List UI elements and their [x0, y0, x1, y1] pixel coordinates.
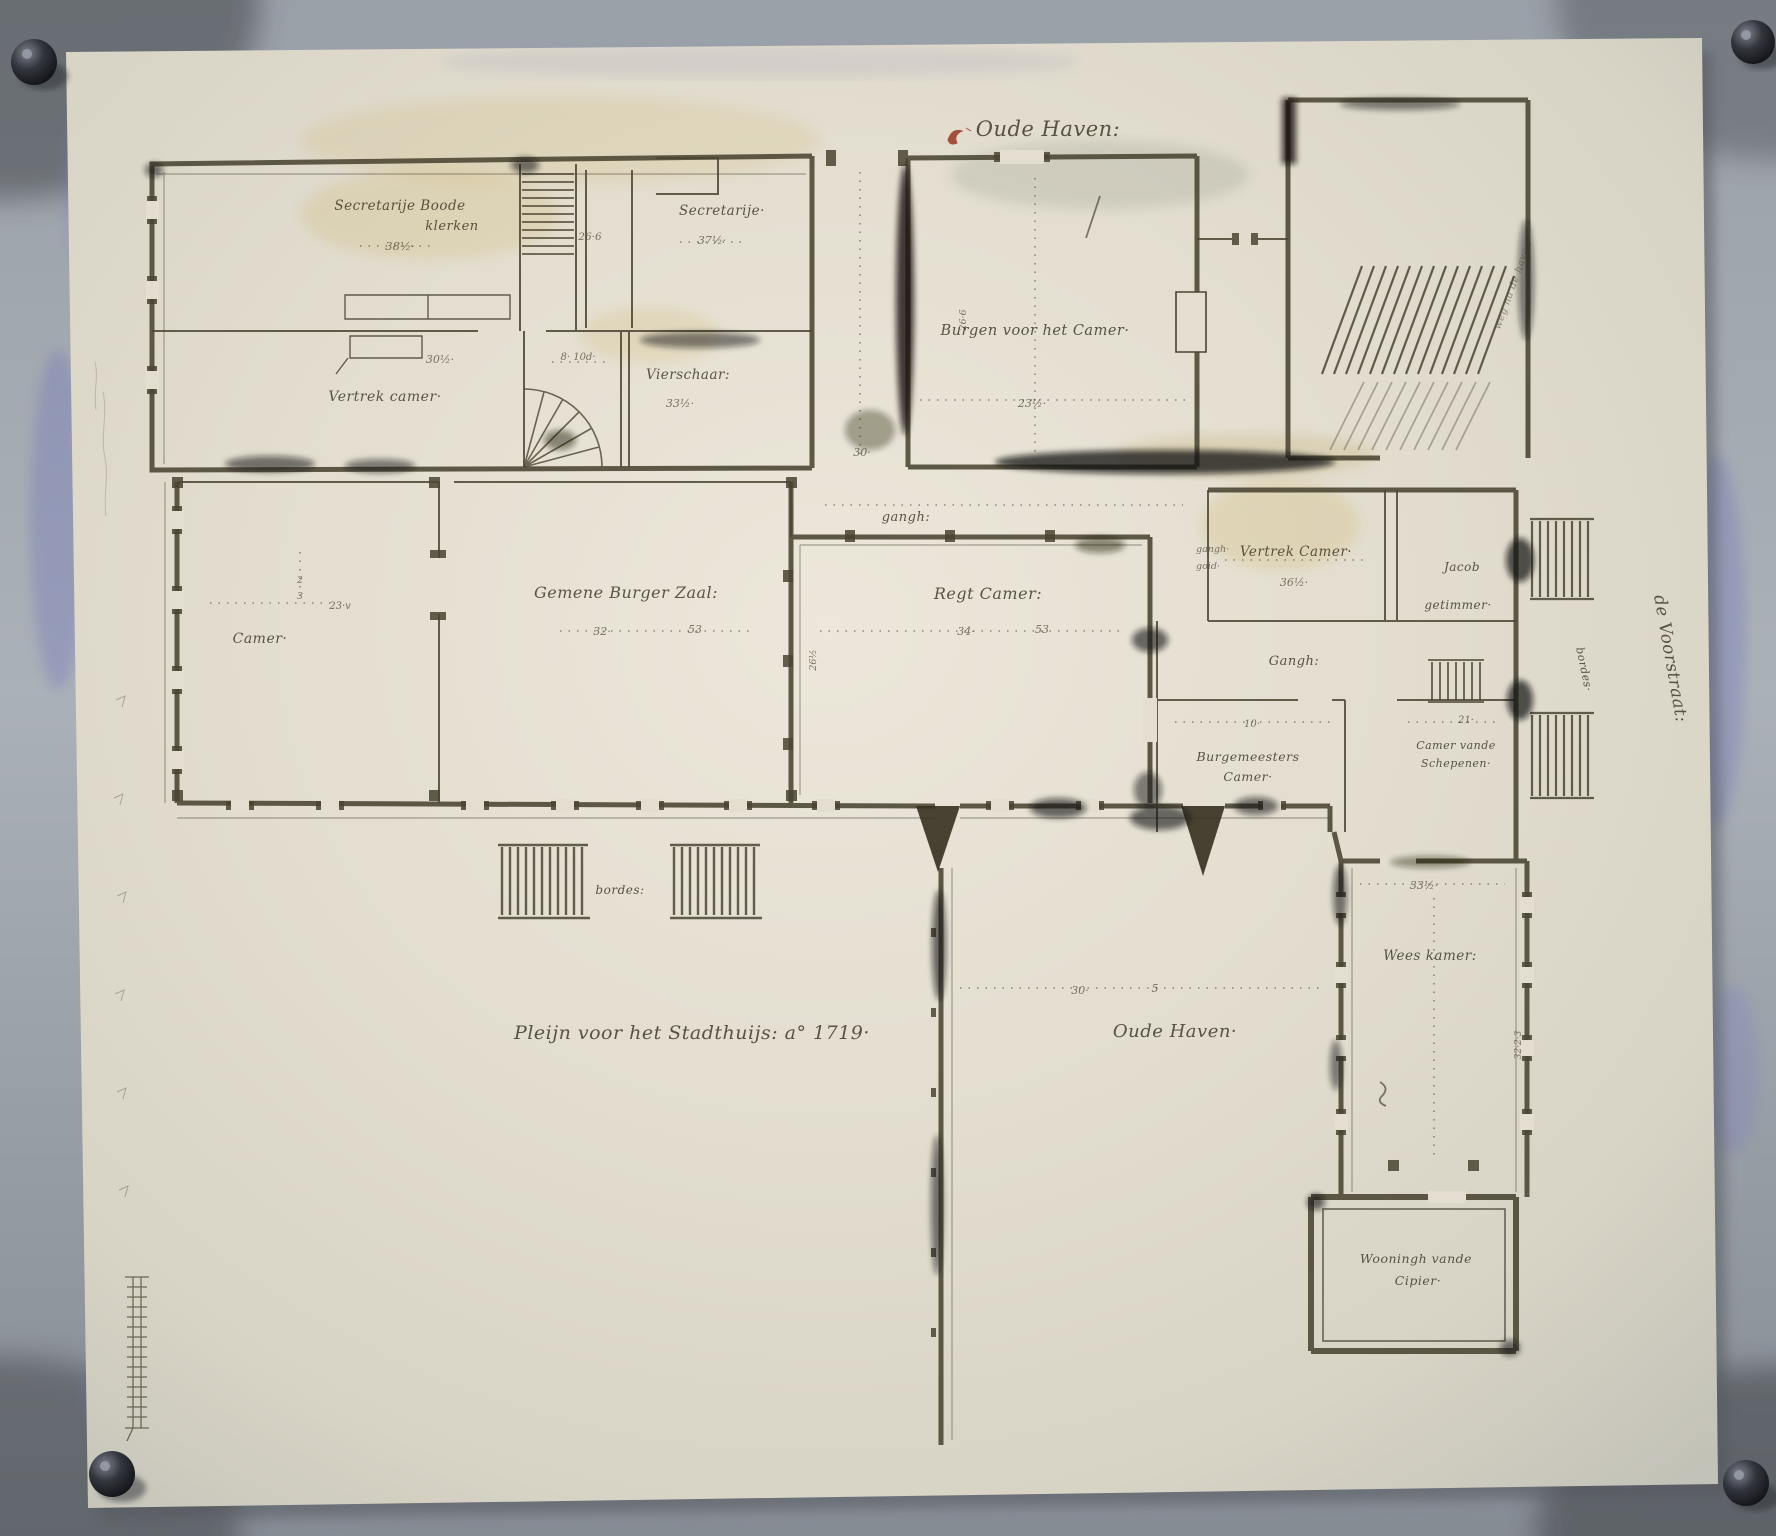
- label-vierschaar: Vierschaar:: [646, 367, 730, 383]
- label-jacob: Jacob: [1441, 560, 1480, 574]
- label-gemene-burger-zaal: Gemene Burger Zaal:: [534, 583, 718, 602]
- dim-26-6-a: 26·6: [577, 231, 602, 243]
- label-burgemeesters-camer: Camer·: [1223, 769, 1272, 784]
- floor-plan-photo: Oude Haven: Secretarije Boode klerken 38…: [0, 0, 1776, 1536]
- label-camer-left: Camer·: [233, 631, 288, 647]
- label-oude-haven-top: Oude Haven:: [976, 117, 1121, 141]
- label-goid: goid·: [1196, 561, 1220, 572]
- dim-30-a: 30·: [853, 446, 871, 459]
- dim-33half: 33½·: [666, 397, 694, 410]
- label-wees-kamer: Wees kamer:: [1383, 948, 1477, 964]
- dim-32-2-3: 32·2·3: [1514, 1030, 1524, 1059]
- label-getimmer: getimmer·: [1424, 598, 1491, 612]
- dim-10: 10·: [1244, 719, 1260, 730]
- photographed-floor-plan: Oude Haven: Secretarije Boode klerken 38…: [0, 0, 1776, 1536]
- dim-36half: 36½·: [1280, 576, 1308, 589]
- dim-26-6-b: 26·6: [958, 309, 969, 331]
- dim-33half-b: 33½·: [1410, 879, 1438, 892]
- label-cipier: Cipier·: [1395, 1273, 1441, 1288]
- dim-26half: 26½: [808, 649, 819, 671]
- label-pleijn: Pleijn voor het Stadthuijs: a° 1719·: [513, 1022, 870, 1044]
- label-gang-2: Gangh:: [1269, 654, 1320, 669]
- dim-2: 2: [296, 576, 303, 586]
- dim-30half: 30½·: [426, 353, 454, 366]
- label-gang-1: gangh:: [882, 510, 931, 525]
- dim-8-10d: 8· 10d·: [560, 352, 595, 363]
- dim-53-a: 53: [688, 623, 702, 636]
- dim-34: 34·: [957, 625, 975, 638]
- age-stain: [300, 95, 820, 185]
- dim-21: 21·: [1457, 715, 1474, 726]
- dim-37half: 37½·: [698, 234, 726, 247]
- label-klerken: klerken: [425, 219, 478, 234]
- dim-53-b: 53: [1035, 623, 1049, 636]
- label-oude-haven-bottom: Oude Haven·: [1113, 1021, 1237, 1042]
- label-secretarije: Secretarije·: [679, 203, 765, 219]
- label-vertrek-camer-right: Vertrek Camer·: [1240, 544, 1352, 560]
- label-wooningh: Wooningh vande: [1360, 1251, 1472, 1266]
- dim-23half: 23½·: [1017, 397, 1046, 410]
- dim-30-b: 30·: [1071, 984, 1089, 997]
- label-secretarije-boode: Secretarije Boode: [334, 198, 465, 214]
- label-vertrek-camer-left: Vertrek camer·: [328, 389, 441, 405]
- label-gang-small: gangh·: [1196, 544, 1229, 555]
- label-schepenen: Schepenen·: [1421, 757, 1491, 770]
- label-regt-camer: Regt Camer:: [933, 584, 1042, 603]
- label-bordes-front: bordes:: [595, 883, 644, 897]
- dim-38half: 38½·: [385, 239, 414, 253]
- label-camer-vande: Camer vande: [1416, 739, 1496, 752]
- dim-32: 32·: [593, 625, 611, 638]
- dim-3: 3: [297, 592, 303, 602]
- dim-5: 5: [1152, 982, 1159, 995]
- dim-23v: 23·v: [328, 601, 351, 612]
- label-burgemeesters: Burgemeesters: [1196, 749, 1300, 764]
